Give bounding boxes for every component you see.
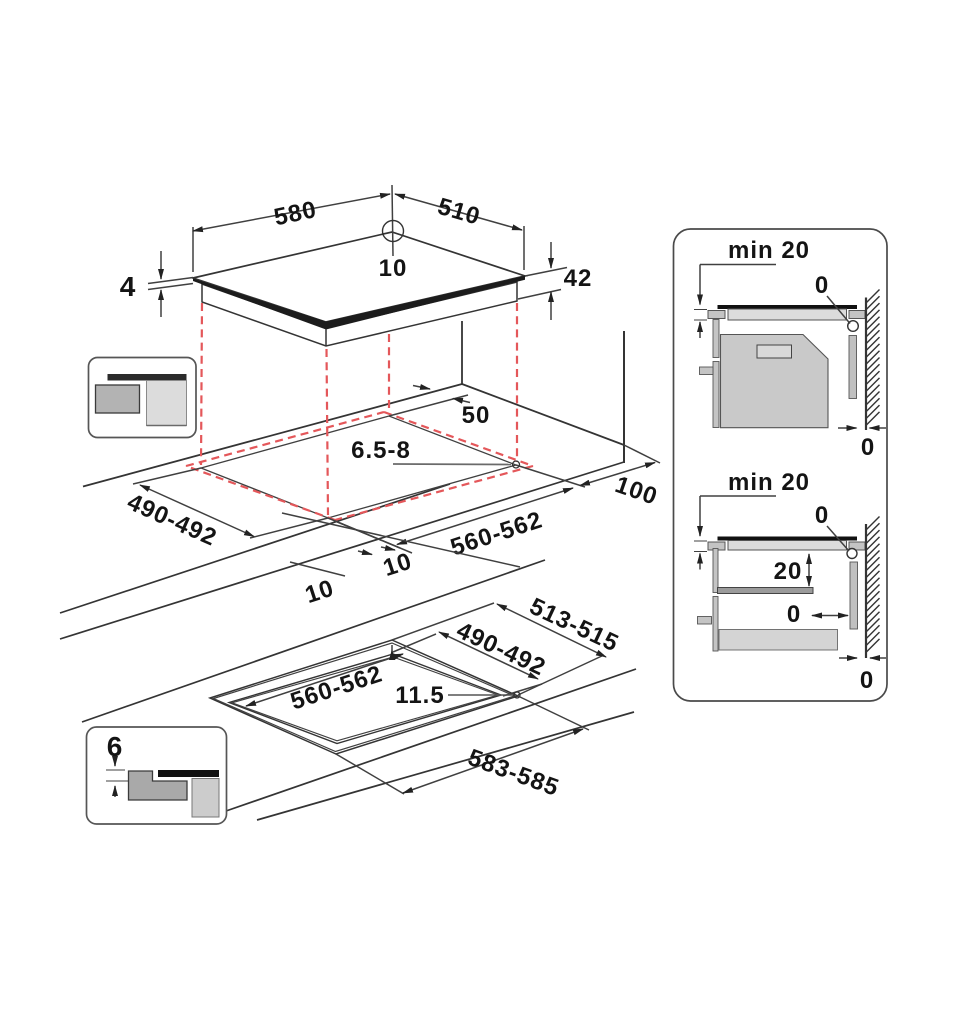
svg-text:6.5-8: 6.5-8	[351, 437, 411, 464]
svg-text:min 20: min 20	[728, 469, 810, 496]
svg-text:42: 42	[564, 265, 593, 292]
svg-text:4: 4	[120, 271, 137, 302]
svg-text:20: 20	[774, 558, 803, 585]
svg-text:min 20: min 20	[728, 237, 810, 264]
svg-text:0: 0	[815, 502, 829, 529]
svg-text:0: 0	[787, 601, 801, 628]
svg-text:0: 0	[861, 434, 875, 461]
svg-text:11.5: 11.5	[395, 682, 444, 709]
svg-text:0: 0	[860, 667, 874, 694]
svg-text:0: 0	[815, 272, 829, 299]
svg-text:10: 10	[379, 255, 408, 282]
svg-text:50: 50	[462, 402, 491, 429]
